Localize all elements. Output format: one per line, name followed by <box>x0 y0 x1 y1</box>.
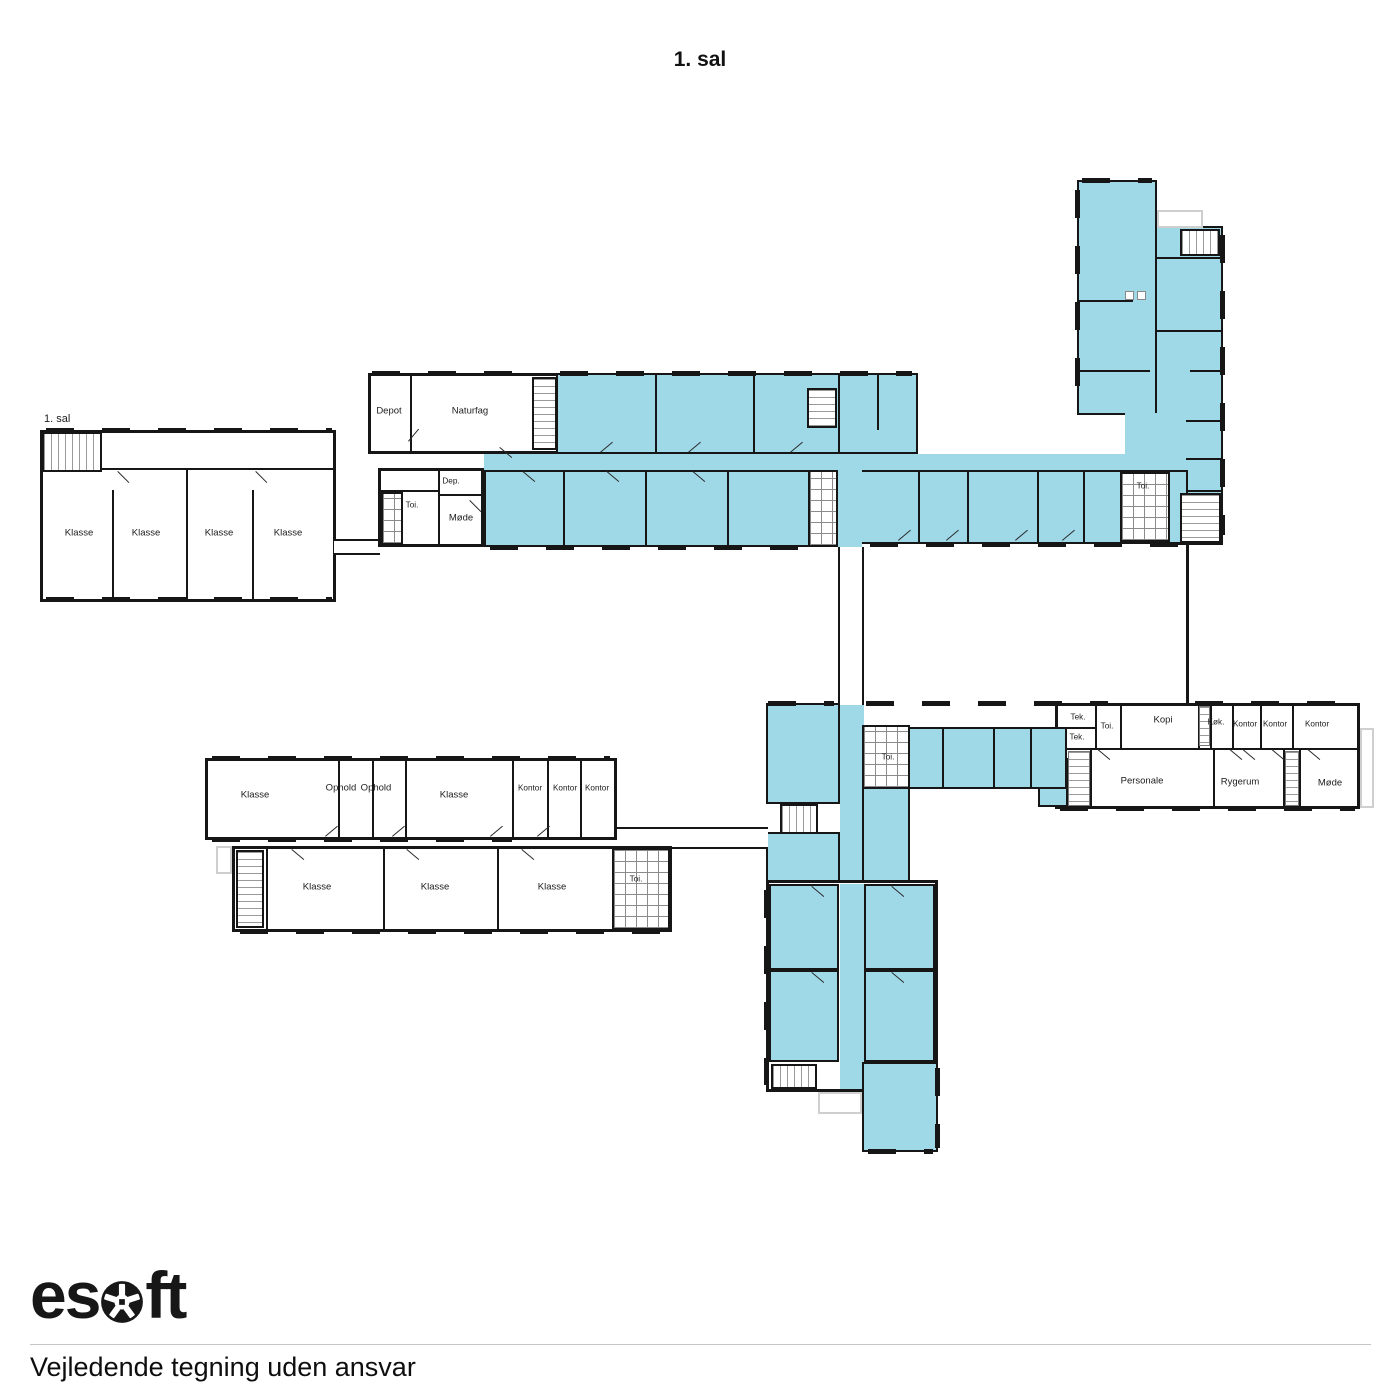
wall <box>338 760 340 838</box>
wall <box>1080 370 1150 372</box>
wall <box>1210 705 1212 750</box>
wall <box>1157 330 1221 332</box>
room-highlighted <box>766 703 840 804</box>
wall <box>497 848 499 930</box>
stairs <box>1180 493 1221 543</box>
stairs <box>771 1064 817 1089</box>
wall <box>405 760 407 838</box>
window-wall <box>868 1149 933 1154</box>
wall <box>877 375 879 430</box>
room-label: Kontor <box>1233 720 1257 729</box>
window-wall <box>870 542 1180 547</box>
corridor <box>1125 413 1186 470</box>
stairs <box>1180 229 1220 256</box>
window-wall <box>240 929 666 934</box>
room-label: Toi. <box>406 501 419 510</box>
wall <box>438 494 484 496</box>
toilet-block <box>381 492 403 545</box>
wall <box>1030 729 1032 787</box>
room-highlighted <box>769 970 839 1062</box>
wall <box>1057 748 1357 750</box>
stairs <box>1068 751 1090 806</box>
corridor <box>484 454 1186 470</box>
room-label: Kopi <box>1153 715 1172 726</box>
room-label: Toi. <box>1137 482 1150 491</box>
room-highlighted <box>862 1062 938 1152</box>
room-label: Dep. <box>442 477 459 486</box>
wall <box>727 472 729 545</box>
room-label: Klasse <box>274 528 303 539</box>
floor-plan: 1. sal 1. sal <box>0 0 1400 1400</box>
window-wall <box>212 837 512 842</box>
corridor <box>838 470 862 547</box>
window-wall <box>1220 235 1225 535</box>
wall <box>1120 705 1122 750</box>
wall <box>383 848 385 930</box>
wall <box>252 490 254 600</box>
room-label: Toi. <box>882 753 895 762</box>
window-wall <box>935 1068 940 1148</box>
wall <box>967 472 969 542</box>
wall <box>655 375 657 452</box>
wall <box>1090 750 1092 807</box>
stairs <box>42 432 102 472</box>
wall <box>1213 750 1215 807</box>
wall <box>918 472 920 542</box>
toilet-fixture <box>1125 291 1134 300</box>
room-label: Klasse <box>241 790 270 801</box>
logo-text-suffix: ft <box>145 1262 185 1328</box>
wall <box>438 468 440 547</box>
wall <box>1037 472 1039 542</box>
room-label: Kontor <box>585 784 609 793</box>
room-label: Kontor <box>518 784 542 793</box>
wall <box>580 760 582 838</box>
wall <box>186 468 188 600</box>
room-highlighted <box>864 884 935 970</box>
room-label: Ophold <box>326 783 357 794</box>
toilet-block <box>808 470 838 547</box>
room-label: Klasse <box>65 528 94 539</box>
room-highlighted-band <box>484 470 810 547</box>
room-lower-wing-row2 <box>232 846 672 932</box>
stairs <box>1285 751 1299 806</box>
window-wall <box>1075 190 1080 405</box>
toilet-fixture <box>1137 291 1146 300</box>
wall <box>942 729 944 787</box>
room-label: Klasse <box>205 528 234 539</box>
wall <box>372 760 374 838</box>
window-wall <box>764 890 769 1085</box>
room-label: Depot <box>376 406 401 417</box>
esoft-logo-icon <box>100 1280 144 1324</box>
room-highlighted-band <box>908 727 1067 789</box>
wall <box>645 472 647 545</box>
room-label: Rygerum <box>1221 777 1260 788</box>
wall <box>1157 257 1221 259</box>
window-wall <box>1082 178 1152 183</box>
room-label: Klasse <box>132 528 161 539</box>
room-label: Klasse <box>421 882 450 893</box>
balcony-outline <box>818 1092 862 1114</box>
stairs <box>780 804 818 834</box>
window-wall <box>46 428 332 433</box>
room-label: Kontor <box>553 784 577 793</box>
wall <box>512 760 514 838</box>
room-label: Klasse <box>538 882 567 893</box>
wall <box>410 375 412 452</box>
disclaimer-text: Vejledende tegning uden ansvar <box>30 1352 416 1383</box>
room-label: Toi. <box>630 875 643 884</box>
wall <box>563 472 565 545</box>
window-wall <box>560 371 912 376</box>
room-label: Klasse <box>440 790 469 801</box>
room-label: Kontor <box>1263 720 1287 729</box>
wall <box>993 729 995 787</box>
corridor <box>334 539 380 555</box>
room-highlighted <box>769 884 839 970</box>
wall <box>112 490 114 600</box>
toilet-block <box>612 848 670 930</box>
room-label: Personale <box>1121 776 1164 787</box>
room-label: Klasse <box>303 882 332 893</box>
wall <box>102 468 336 470</box>
room-highlighted <box>864 970 935 1062</box>
room-highlighted <box>766 832 840 882</box>
room-label: Tek. <box>1069 733 1084 742</box>
page-title: 1. sal <box>674 48 727 72</box>
stairs <box>236 850 264 928</box>
room-label: Møde <box>1318 778 1342 789</box>
room-label: Møde <box>449 513 473 524</box>
wall <box>753 375 755 452</box>
balcony-outline <box>1360 728 1374 808</box>
window-wall <box>46 597 332 602</box>
room-highlighted <box>862 787 910 886</box>
room-label: Kontor <box>1305 720 1329 729</box>
window-wall <box>1195 701 1355 706</box>
wall <box>1190 370 1223 372</box>
window-wall <box>490 545 805 550</box>
wall <box>1299 750 1301 807</box>
wall <box>1077 300 1133 302</box>
window-wall <box>212 756 610 761</box>
logo-text-prefix: es <box>30 1262 99 1328</box>
corridor <box>840 884 864 1089</box>
stairs <box>807 388 837 428</box>
wall <box>1186 544 1189 705</box>
room-label: Ophold <box>361 783 392 794</box>
footer-divider <box>30 1344 1371 1345</box>
balcony-outline <box>1157 210 1203 228</box>
corridor <box>838 547 864 705</box>
balcony-outline <box>216 846 232 874</box>
window-wall <box>866 701 1108 706</box>
window-wall <box>372 371 528 376</box>
window-wall <box>768 701 834 706</box>
stairs <box>532 377 557 450</box>
wall <box>838 375 840 452</box>
wall <box>1292 705 1294 750</box>
room-label: Tek. <box>1070 713 1085 722</box>
room-label: Toi. <box>1101 722 1114 731</box>
esoft-logo: es ft <box>30 1262 185 1328</box>
wall <box>266 848 268 930</box>
wall <box>1083 472 1085 542</box>
floor-tag-label: 1. sal <box>44 413 70 425</box>
room-label: Naturfag <box>452 406 488 417</box>
wall <box>1260 705 1262 750</box>
room-label: Køk. <box>1208 718 1225 727</box>
window-wall <box>933 888 938 1058</box>
window-wall <box>1060 806 1355 811</box>
